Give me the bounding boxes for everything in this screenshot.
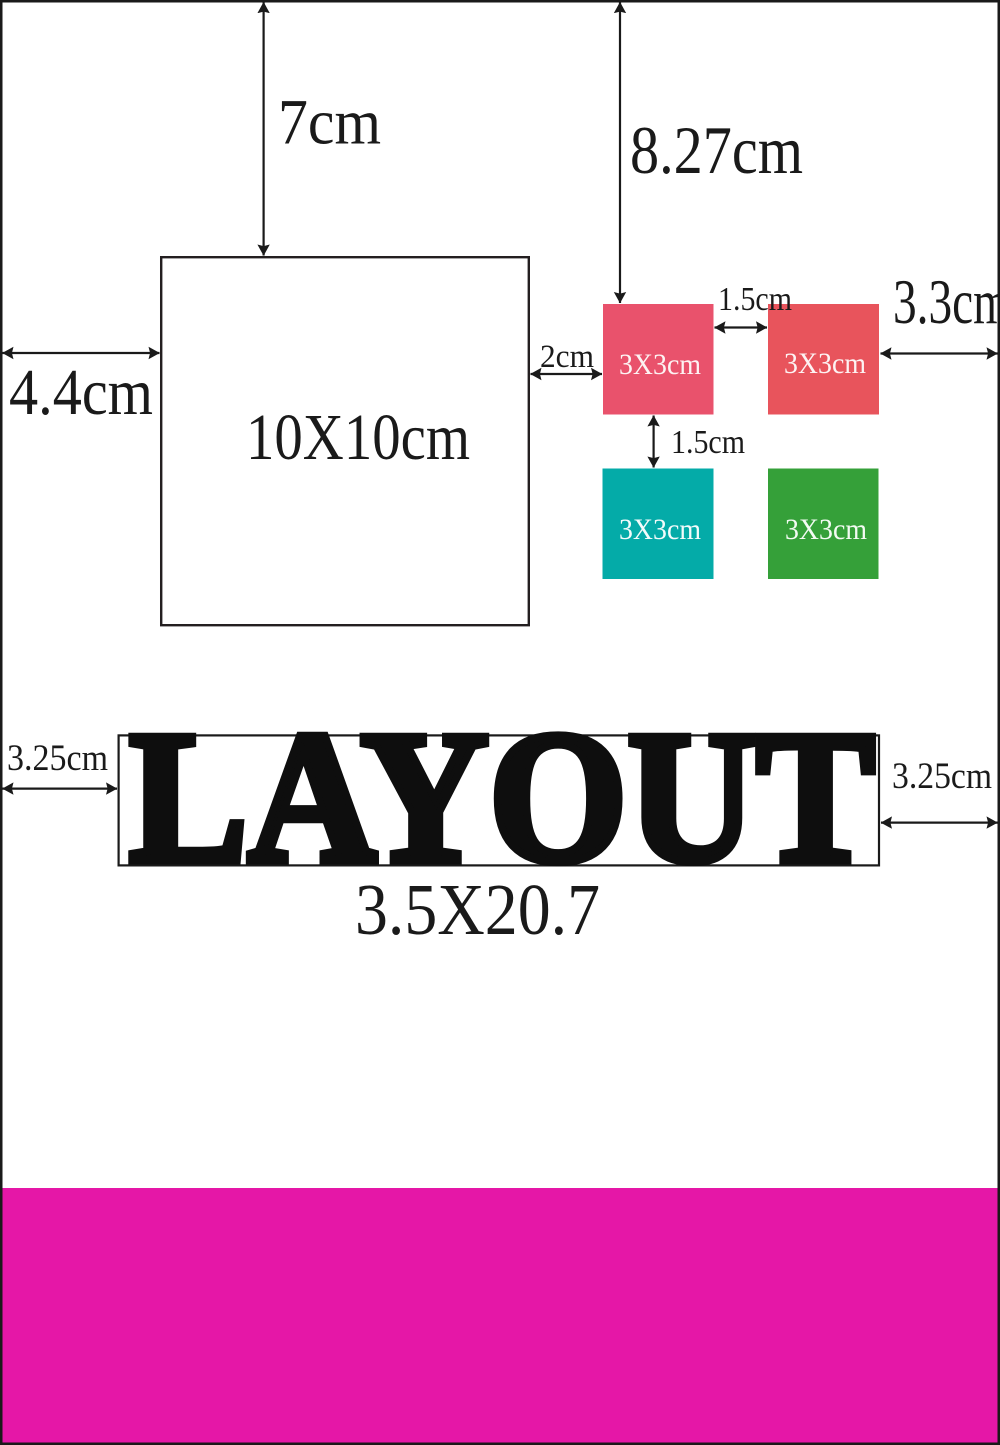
svg-text:1.5cm: 1.5cm xyxy=(671,424,745,461)
svg-text:3.25cm: 3.25cm xyxy=(892,756,992,797)
svg-text:8.27cm: 8.27cm xyxy=(630,112,803,188)
svg-text:3X3cm: 3X3cm xyxy=(619,348,701,381)
svg-text:2cm: 2cm xyxy=(540,339,594,375)
svg-text:3X3cm: 3X3cm xyxy=(785,513,867,546)
svg-text:3.25cm: 3.25cm xyxy=(7,738,108,779)
svg-text:4.4cm: 4.4cm xyxy=(9,356,153,429)
svg-text:3.5X20.7: 3.5X20.7 xyxy=(355,869,600,950)
svg-text:1.5cm: 1.5cm xyxy=(718,281,792,318)
svg-text:3.3cm: 3.3cm xyxy=(893,267,1000,337)
svg-text:7cm: 7cm xyxy=(278,87,381,159)
svg-text:3X3cm: 3X3cm xyxy=(784,347,866,380)
svg-text:3X3cm: 3X3cm xyxy=(619,513,701,546)
svg-text:10X10cm: 10X10cm xyxy=(246,401,470,474)
